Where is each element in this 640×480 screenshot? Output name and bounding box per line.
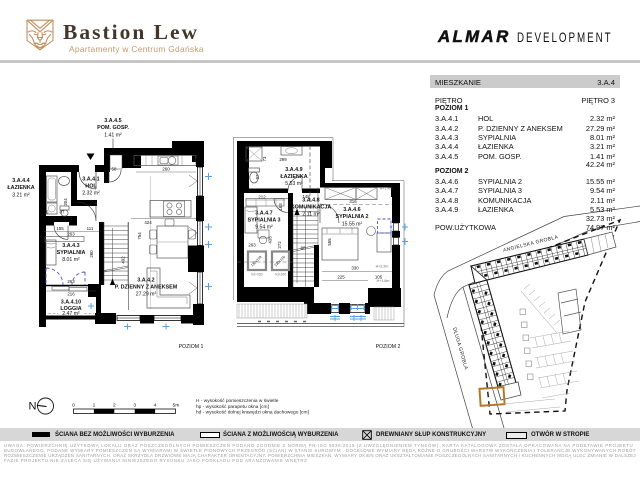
svg-text:263: 263 [67, 231, 75, 236]
svg-text:3.A.4.2: 3.A.4.2 [137, 278, 154, 284]
svg-text:H+2.2m: H+2.2m [376, 265, 389, 269]
svg-text:2.32 m²: 2.32 m² [82, 191, 100, 197]
svg-text:435: 435 [268, 236, 273, 244]
svg-text:2: 2 [113, 403, 116, 409]
svg-text:2.11 m²: 2.11 m² [302, 212, 319, 218]
svg-text:3.A.4.5: 3.A.4.5 [104, 118, 121, 124]
svg-text:280: 280 [89, 250, 94, 258]
svg-text:15.55 m²: 15.55 m² [342, 222, 363, 228]
svg-text:5m: 5m [173, 403, 180, 409]
svg-text:1: 1 [93, 403, 96, 409]
svg-text:555: 555 [327, 238, 332, 246]
svg-text:424: 424 [144, 220, 152, 225]
svg-text:SYPIALNIA: SYPIALNIA [57, 250, 86, 256]
svg-text:hp - wysokość parapetu okna [c: hp - wysokość parapetu okna [cm] [196, 404, 269, 410]
svg-text:163: 163 [278, 203, 283, 211]
svg-text:73: 73 [262, 156, 267, 161]
svg-text:56: 56 [44, 210, 49, 215]
svg-text:3.A.4.6: 3.A.4.6 [343, 207, 360, 213]
svg-text:216: 216 [67, 292, 75, 297]
svg-text:0: 0 [72, 403, 75, 409]
svg-text:ŁAZIENKA: ŁAZIENKA [280, 174, 307, 180]
svg-text:225: 225 [337, 275, 345, 280]
svg-text:3: 3 [133, 403, 136, 409]
svg-text:492: 492 [121, 256, 126, 264]
svg-text:hd+260: hd+260 [275, 273, 287, 277]
svg-text:9.54 m²: 9.54 m² [255, 225, 273, 231]
svg-text:SYPIALNIA 2: SYPIALNIA 2 [335, 214, 368, 220]
svg-text:58: 58 [112, 167, 117, 172]
svg-text:3.A.4.8: 3.A.4.8 [302, 198, 319, 204]
svg-text:263: 263 [67, 279, 75, 284]
svg-text:5.53 m²: 5.53 m² [285, 181, 303, 187]
svg-text:299: 299 [279, 157, 287, 162]
svg-text:8.01 m²: 8.01 m² [62, 257, 80, 263]
svg-text:1.41 m²: 1.41 m² [104, 133, 122, 139]
svg-text:272: 272 [277, 241, 282, 249]
svg-text:155: 155 [56, 226, 64, 231]
svg-text:H+1.4m: H+1.4m [380, 187, 393, 191]
svg-text:ŁAZIENKA: ŁAZIENKA [7, 185, 34, 191]
svg-text:4: 4 [154, 403, 157, 409]
svg-text:754: 754 [137, 232, 142, 240]
svg-text:hd - wysokość dolnej krawędzi: hd - wysokość dolnej krawędzi okna dacho… [196, 410, 309, 416]
svg-text:3.A.4.1: 3.A.4.1 [82, 177, 99, 183]
svg-text:P. DZIENNY Z ANEKSEM: P. DZIENNY Z ANEKSEM [115, 285, 178, 291]
svg-text:111: 111 [87, 226, 94, 231]
svg-text:55: 55 [243, 157, 248, 162]
svg-text:316: 316 [349, 199, 357, 204]
svg-text:330: 330 [351, 266, 359, 271]
svg-text:3.A.4.9: 3.A.4.9 [285, 167, 302, 173]
svg-text:204: 204 [63, 198, 68, 206]
svg-text:POM. GOSP.: POM. GOSP. [97, 125, 129, 131]
svg-text:N: N [29, 401, 37, 413]
svg-text:HOL: HOL [85, 184, 97, 190]
svg-text:97: 97 [255, 174, 260, 179]
svg-text:H+1.6m: H+1.6m [377, 279, 390, 283]
svg-text:263: 263 [248, 243, 256, 248]
svg-text:27.29 m²: 27.29 m² [136, 292, 157, 298]
svg-text:SYPIALNIA 3: SYPIALNIA 3 [247, 218, 280, 224]
svg-text:3.A.4.3: 3.A.4.3 [62, 243, 79, 249]
svg-text:260: 260 [162, 167, 170, 172]
svg-text:hd+260: hd+260 [251, 273, 263, 277]
svg-text:87: 87 [60, 210, 65, 215]
svg-text:3.A.4.10: 3.A.4.10 [61, 300, 81, 306]
svg-text:3.A.4.4: 3.A.4.4 [12, 178, 29, 184]
svg-text:POZIOM 2: POZIOM 2 [376, 344, 401, 350]
svg-text:POZIOM 1: POZIOM 1 [179, 344, 204, 350]
svg-text:90x140: 90x140 [390, 224, 394, 235]
svg-text:H - wysokość pomieszczenia w ś: H - wysokość pomieszczenia w świetle [196, 398, 279, 404]
svg-text:3.21 m²: 3.21 m² [12, 193, 30, 199]
svg-text:80: 80 [301, 246, 306, 251]
svg-text:3.A.4.7: 3.A.4.7 [255, 211, 272, 217]
